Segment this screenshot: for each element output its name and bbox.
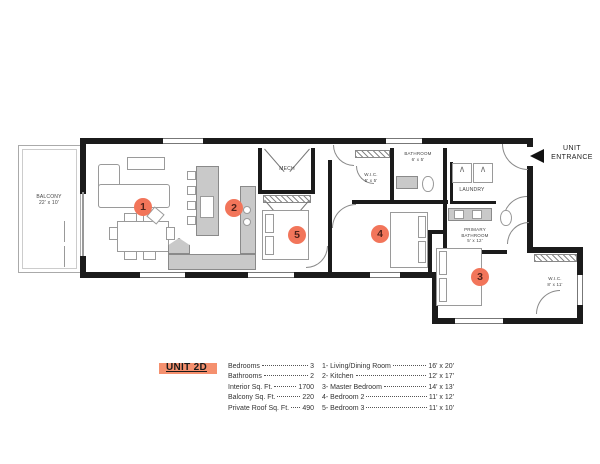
balcony-door-arrow bbox=[64, 221, 65, 242]
laundry-label: LAUNDRY bbox=[448, 187, 496, 193]
marker-number: 5 bbox=[294, 229, 300, 241]
bathroom-dims: 6' x 5' bbox=[392, 157, 444, 163]
appliance-peak-icon: ∧ bbox=[480, 164, 487, 174]
room-label-text: 1- Living/Dining Room bbox=[322, 363, 391, 370]
unit-entrance-arrow-icon bbox=[530, 149, 544, 163]
room-label-text: 5- Bedroom 3 bbox=[322, 405, 364, 412]
bathroom-vanity bbox=[396, 176, 418, 189]
room-label-text: 4- Bedroom 2 bbox=[322, 394, 364, 401]
window bbox=[386, 138, 422, 144]
leader-dots bbox=[274, 386, 296, 387]
bathroom-label: BATHROOM 6' x 5' bbox=[392, 151, 444, 162]
window bbox=[140, 272, 185, 278]
legend-stats: Bedrooms3 Bathrooms2 Interior Sq. Ft.170… bbox=[228, 363, 314, 415]
balcony-dims: 22' x 10' bbox=[20, 200, 78, 206]
sink bbox=[454, 210, 464, 219]
room-dims: 11' x 12' bbox=[429, 394, 454, 401]
stat-value: 2 bbox=[310, 373, 314, 380]
window bbox=[370, 272, 400, 278]
wall bbox=[527, 247, 583, 253]
balcony-inner-line bbox=[22, 149, 77, 269]
window bbox=[163, 138, 203, 144]
leader-dots bbox=[366, 407, 426, 408]
bar-stool bbox=[187, 171, 196, 180]
chair bbox=[109, 227, 118, 240]
legend-room-row: 3- Master Bedroom14' x 13' bbox=[322, 384, 454, 394]
pillow bbox=[265, 214, 274, 233]
wic-master-dims: 8' x 11' bbox=[536, 282, 574, 288]
stat-label: Bathrooms bbox=[228, 373, 262, 380]
door-arc bbox=[306, 246, 328, 268]
mech-name: MECH bbox=[262, 166, 312, 172]
stat-label: Private Roof Sq. Ft. bbox=[228, 405, 289, 412]
legend-room-row: 4- Bedroom 211' x 12' bbox=[322, 394, 454, 404]
cooktop-burner bbox=[243, 218, 251, 226]
sink bbox=[472, 210, 482, 219]
marker-bedroom-2: 4 bbox=[371, 225, 389, 243]
wall bbox=[80, 138, 533, 144]
legend-rooms: 1- Living/Dining Room16' x 20' 2- Kitche… bbox=[322, 363, 454, 415]
wic-master-label: W.I.C. 8' x 11' bbox=[536, 276, 574, 287]
door-arc bbox=[536, 290, 560, 314]
wall bbox=[428, 232, 432, 272]
sliding-door-line bbox=[82, 192, 84, 256]
legend-stat-row: Bathrooms2 bbox=[228, 373, 314, 383]
leader-dots bbox=[356, 375, 427, 376]
marker-bedroom-3: 5 bbox=[288, 226, 306, 244]
wic-small-label: W.I.C. 5' x 5' bbox=[352, 172, 390, 183]
wall bbox=[352, 200, 448, 204]
stat-value: 1700 bbox=[298, 384, 314, 391]
toilet bbox=[422, 176, 434, 192]
laundry-name: LAUNDRY bbox=[448, 187, 496, 193]
cooktop-burner bbox=[243, 206, 251, 214]
door-arc bbox=[333, 145, 354, 166]
balcony-label: BALCONY 22' x 10' bbox=[20, 194, 78, 207]
marker-number: 4 bbox=[377, 228, 383, 240]
leader-dots bbox=[366, 396, 426, 397]
bar-stool bbox=[187, 216, 196, 225]
stat-value: 3 bbox=[310, 363, 314, 370]
room-dims: 11' x 10' bbox=[429, 405, 454, 412]
wall bbox=[258, 190, 315, 194]
closet-hatch bbox=[263, 195, 311, 203]
room-dims: 16' x 20' bbox=[428, 363, 454, 370]
unit-entrance-line2: ENTRANCE bbox=[546, 153, 598, 162]
door-arc bbox=[502, 144, 528, 170]
chair bbox=[124, 213, 137, 222]
marker-number: 2 bbox=[231, 202, 237, 214]
chair bbox=[143, 251, 156, 260]
legend-stat-row: Private Roof Sq. Ft.490 bbox=[228, 405, 314, 415]
leader-dots bbox=[264, 375, 308, 376]
leader-dots bbox=[262, 365, 308, 366]
room-dims: 14' x 13' bbox=[428, 384, 454, 391]
leader-dots bbox=[291, 407, 300, 408]
wall bbox=[450, 201, 496, 204]
door-arc bbox=[507, 222, 529, 244]
marker-living-dining: 1 bbox=[134, 198, 152, 216]
island-sink bbox=[200, 196, 214, 218]
wic-small-dims: 5' x 5' bbox=[352, 178, 390, 184]
room-dims: 12' x 17' bbox=[428, 373, 454, 380]
window bbox=[455, 318, 503, 324]
dryer: ∧ bbox=[473, 163, 493, 183]
tv-console bbox=[127, 157, 165, 170]
stat-label: Interior Sq. Ft. bbox=[228, 384, 272, 391]
door-arc bbox=[332, 204, 356, 228]
stat-value: 490 bbox=[302, 405, 314, 412]
leader-dots bbox=[384, 386, 426, 387]
kitchen-pantry bbox=[168, 238, 190, 254]
marker-number: 1 bbox=[140, 201, 146, 213]
wall bbox=[328, 160, 332, 272]
pillow bbox=[265, 236, 274, 255]
floor-plan-page: BALCONY 22' x 10' bbox=[0, 0, 600, 464]
appliance-peak-icon: ∧ bbox=[459, 164, 466, 174]
marker-number: 3 bbox=[477, 271, 483, 283]
pillow bbox=[418, 241, 426, 263]
mech-label: MECH bbox=[262, 166, 312, 172]
primary-bathroom-label: PRIMARY BATHROOM 5' x 12' bbox=[444, 227, 506, 244]
balcony-door-arrow bbox=[64, 246, 65, 267]
pillow bbox=[439, 251, 447, 275]
legend-stat-row: Interior Sq. Ft.1700 bbox=[228, 384, 314, 394]
stat-value: 220 bbox=[302, 394, 314, 401]
legend-stat-row: Bedrooms3 bbox=[228, 363, 314, 373]
bar-stool bbox=[187, 201, 196, 210]
marker-kitchen: 2 bbox=[225, 199, 243, 217]
chair bbox=[166, 227, 175, 240]
unit-title: UNIT 2D bbox=[166, 362, 207, 373]
window bbox=[248, 272, 294, 278]
stat-label: Bedrooms bbox=[228, 363, 260, 370]
closet-hatch bbox=[534, 254, 577, 262]
primary-bathroom-dims: 5' x 12' bbox=[444, 238, 506, 244]
leader-dots bbox=[393, 365, 426, 366]
legend-room-row: 2- Kitchen12' x 17' bbox=[322, 373, 454, 383]
leader-dots bbox=[277, 396, 300, 397]
legend-room-row: 5- Bedroom 311' x 10' bbox=[322, 405, 454, 415]
wall bbox=[80, 138, 86, 194]
toilet bbox=[500, 210, 512, 226]
dining-table bbox=[117, 221, 169, 252]
closet-hatch bbox=[355, 150, 390, 158]
room-label-text: 2- Kitchen bbox=[322, 373, 354, 380]
marker-master-bedroom: 3 bbox=[471, 268, 489, 286]
kitchen-counter bbox=[168, 254, 256, 270]
unit-entrance-label: UNIT ENTRANCE bbox=[546, 144, 598, 162]
chair bbox=[124, 251, 137, 260]
stat-label: Balcony Sq. Ft. bbox=[228, 394, 275, 401]
bar-stool bbox=[187, 186, 196, 195]
unit-entrance-line1: UNIT bbox=[546, 144, 598, 153]
pillow bbox=[439, 278, 447, 302]
pillow bbox=[418, 216, 426, 238]
legend-stat-row: Balcony Sq. Ft.220 bbox=[228, 394, 314, 404]
window bbox=[577, 275, 583, 305]
washer: ∧ bbox=[452, 163, 472, 183]
room-label-text: 3- Master Bedroom bbox=[322, 384, 382, 391]
legend-room-row: 1- Living/Dining Room16' x 20' bbox=[322, 363, 454, 373]
